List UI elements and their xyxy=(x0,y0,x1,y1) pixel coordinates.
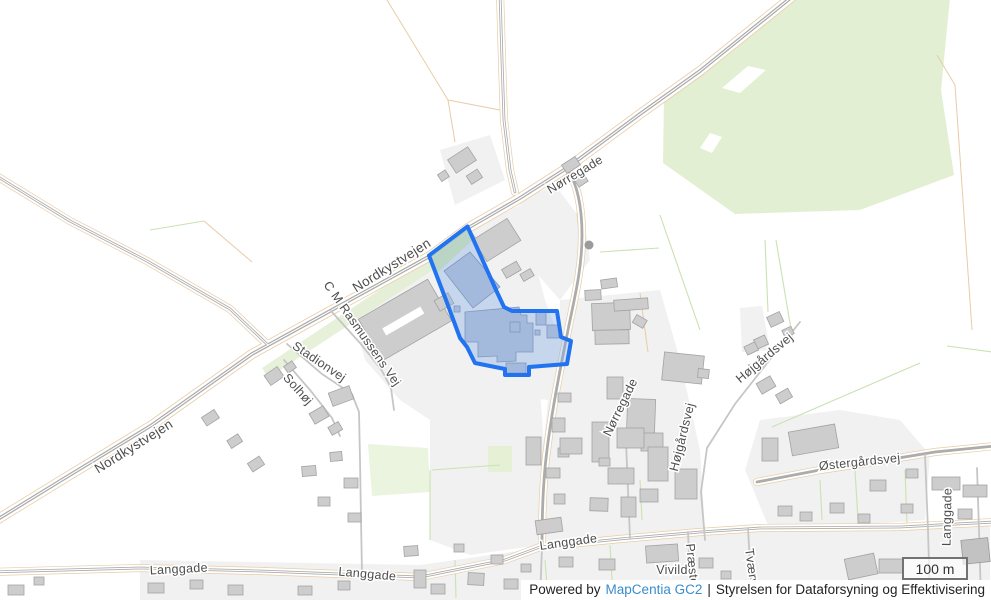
poi-dot xyxy=(585,241,594,250)
map-viewport[interactable]: Nordkystvejen Nordkystvejen Nørregade C … xyxy=(0,0,991,600)
attribution-link[interactable]: MapCentia GC2 xyxy=(606,582,703,597)
scale-bar-label: 100 m xyxy=(916,561,955,577)
attribution-bar: Powered by MapCentia GC2 | Styrelsen for… xyxy=(521,580,991,600)
attribution-prefix: Powered by xyxy=(529,582,600,597)
attribution-agency: Styrelsen for Dataforsyning og Effektivi… xyxy=(716,582,985,597)
map-canvas[interactable]: Nordkystvejen Nordkystvejen Nørregade C … xyxy=(0,0,991,600)
place-label-vivild: Vivild xyxy=(656,563,687,577)
street-label-langgade-east: Langgade xyxy=(939,488,954,546)
street-label-nordkystvejen-southwest: Nordkystvejen xyxy=(92,416,176,476)
attribution-separator: | xyxy=(707,582,711,597)
scale-bar: 100 m xyxy=(902,557,968,580)
